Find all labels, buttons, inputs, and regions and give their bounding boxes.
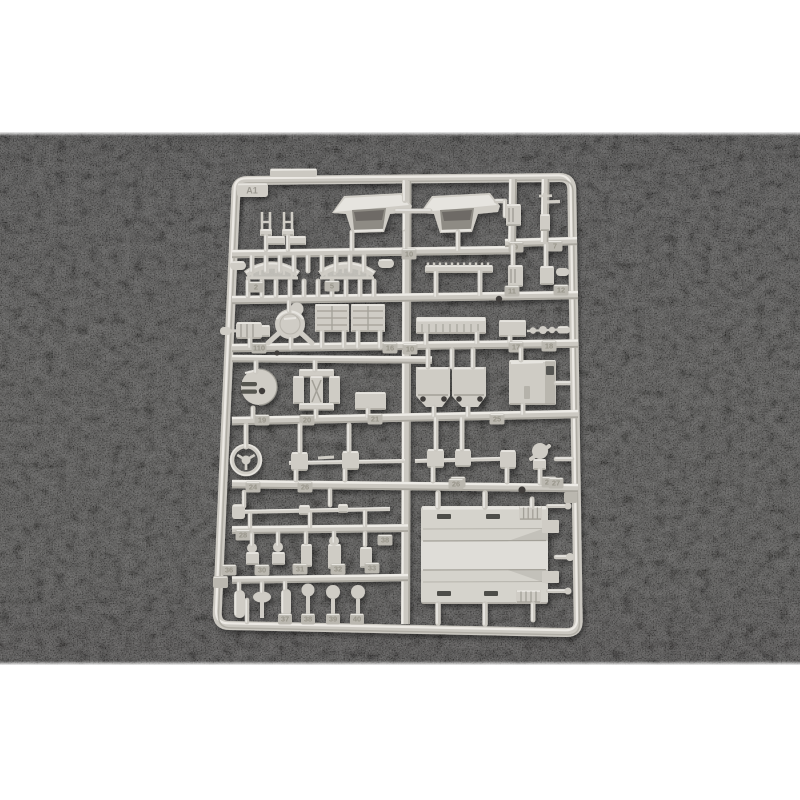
svg-text:38: 38 <box>304 615 312 624</box>
svg-text:2: 2 <box>254 283 258 292</box>
svg-text:36: 36 <box>225 566 233 575</box>
svg-text:28: 28 <box>239 531 247 540</box>
svg-text:A1: A1 <box>246 186 258 196</box>
svg-text:40: 40 <box>353 615 361 624</box>
svg-text:27: 27 <box>552 479 560 488</box>
svg-text:38: 38 <box>381 536 389 545</box>
svg-text:25: 25 <box>493 415 501 424</box>
svg-text:30: 30 <box>258 566 266 575</box>
svg-text:26: 26 <box>452 480 460 489</box>
svg-text:110: 110 <box>253 344 265 353</box>
svg-text:10: 10 <box>405 250 413 259</box>
svg-text:26: 26 <box>301 483 309 492</box>
svg-text:19: 19 <box>258 416 266 425</box>
svg-text:18: 18 <box>545 342 553 351</box>
svg-text:33: 33 <box>368 564 376 573</box>
svg-text:24: 24 <box>249 483 258 492</box>
svg-text:31: 31 <box>296 565 304 574</box>
svg-text:12: 12 <box>557 286 565 295</box>
svg-text:7: 7 <box>553 242 557 251</box>
svg-text:5: 5 <box>330 282 334 291</box>
svg-text:16: 16 <box>386 344 394 353</box>
svg-text:37: 37 <box>281 615 289 624</box>
svg-text:21: 21 <box>371 415 379 424</box>
svg-text:32: 32 <box>334 565 342 574</box>
svg-text:20: 20 <box>303 416 311 425</box>
svg-text:10: 10 <box>406 345 414 354</box>
svg-text:11: 11 <box>508 287 516 296</box>
svg-text:39: 39 <box>329 615 337 624</box>
